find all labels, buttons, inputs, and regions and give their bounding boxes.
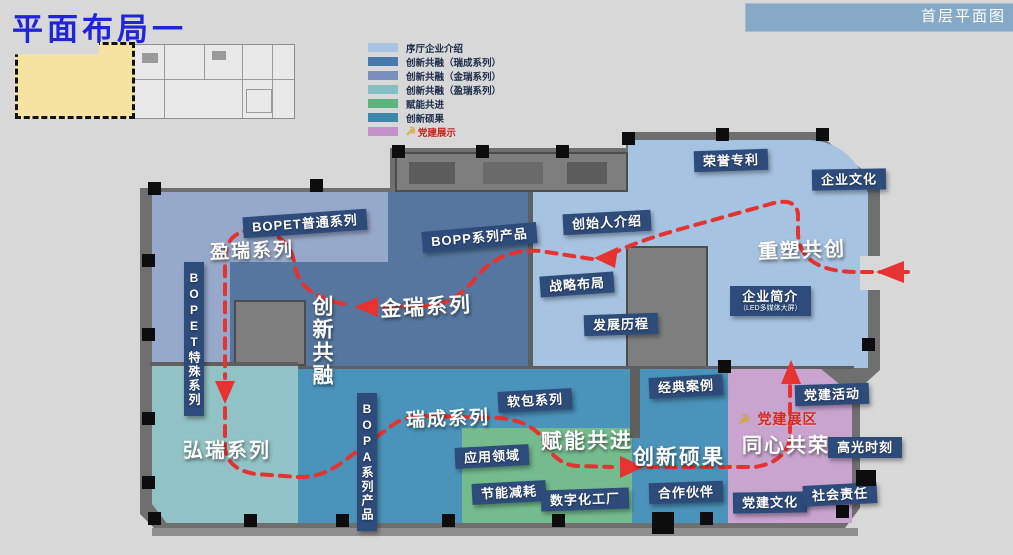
legend-swatch [368,57,398,66]
column [142,328,155,341]
legend-label: 创新硕果 [406,111,444,125]
legend-swatch [368,127,398,136]
legend-item: 序厅企业介绍 [368,41,501,54]
area-label-text: 企业简介 [742,289,798,304]
legend-swatch [368,71,398,80]
zone-title-yingrui: 盈瑞系列 [210,235,295,265]
zone-title-funeng: 赋能共进 [541,424,634,456]
area-label-bopa: BOPA系列产品 [357,393,377,531]
column [552,514,565,527]
column [718,360,731,373]
zone-title-tongxin: 同心共荣 [742,429,830,458]
area-label-hezuo: 合作伙伴 [649,481,724,505]
legend-label: 序厅企业介绍 [406,41,463,55]
area-label-dangjian-huodong: 党建活动 [795,383,870,407]
zone-title-ruicheng: 瑞成系列 [406,403,491,433]
area-label-bopet-teshu: BOPET特殊系列 [184,262,204,416]
interior-wall [150,362,298,366]
column [652,512,674,534]
area-label-yingyong: 应用领域 [455,444,530,469]
entrance-gap [860,256,886,290]
zone-title-dangjian-zhanqu: ☭ 党建展区 [738,409,818,429]
bottom-sill [152,528,858,536]
zone-title-shuoguo: 创新硕果 [633,441,725,471]
legend-item: 创新共融（盈瑞系列） [368,83,501,96]
column [716,128,729,141]
stairwell-block [626,246,708,368]
area-label-ruanbao: 软包系列 [498,388,573,413]
legend: 序厅企业介绍 创新共融（瑞成系列） 创新共融（金瑞系列） 创新共融（盈瑞系列） … [368,41,501,139]
zone-title-chuangxin-gongrong: 创新共融 [306,295,336,387]
column [622,132,635,145]
column [442,514,455,527]
party-emblem-icon: ☭ [738,412,751,427]
area-label-shuzihua: 数字化工厂 [541,487,630,511]
party-emblem-icon: ☭ [406,125,416,138]
legend-swatch [368,43,398,52]
zone-jinrui [388,192,530,370]
area-label-jingdian: 经典案例 [649,374,724,399]
column [148,512,161,525]
zone-title-chongsu: 重塑共创 [758,232,847,264]
zone-title-text: 党建展区 [758,411,818,427]
area-label-qiyewenhua: 企业文化 [812,168,886,190]
column [310,179,323,192]
legend-item: 赋能共进 [368,97,501,110]
column [336,514,349,527]
area-label-fazhan: 发展历程 [584,313,659,337]
area-label-dangjian-wenhua: 党建文化 [733,491,807,513]
legend-label: 创新共融（盈瑞系列） [406,83,501,97]
legend-item: 创新硕果 [368,111,501,124]
legend-item: 创新共融（瑞成系列） [368,55,501,68]
area-label-jieneng: 节能减耗 [472,480,547,505]
slide-canvas: 平面布局一 首层平面图 序厅企业介绍 创新共融（瑞成系列） 创新共融（金瑞系列） [0,0,1013,555]
area-label-rongyu: 荣誉专利 [694,149,769,173]
legend-label: 创新共融（金瑞系列） [406,69,501,83]
service-block [234,300,306,366]
legend-swatch [368,113,398,122]
area-label-qiyejianjie: 企业简介 （LED多媒体大屏） [730,286,811,316]
column [142,412,155,425]
zone-title-hongrui: 弘瑞系列 [183,434,271,463]
area-label-gaoguang: 高光时刻 [828,437,902,458]
legend-swatch [368,99,398,108]
legend-label: 党建展示 [418,125,456,139]
stair-corridor [395,152,628,192]
column [392,145,405,158]
legend-swatch [368,85,398,94]
column [244,514,257,527]
column [556,145,569,158]
legend-label: 赋能共进 [406,97,444,111]
thumbnail-highlight-zone [15,42,135,119]
column [148,182,161,195]
legend-item: ☭ 党建展示 [368,125,501,138]
thumbnail-detail [133,44,295,119]
column [142,476,155,489]
column [816,128,829,141]
zone-title-jinrui: 金瑞系列 [379,289,472,324]
column [700,512,713,525]
interior-wall [528,192,533,368]
column [856,470,876,486]
corner-tab: 首层平面图 [745,3,1013,32]
column [836,505,849,518]
legend-item: 创新共融（金瑞系列） [368,69,501,82]
column [476,145,489,158]
legend-label: 创新共融（瑞成系列） [406,55,501,69]
thumbnail-plan [15,42,295,119]
area-label-subtext: （LED多媒体大屏） [739,305,802,312]
column [862,338,875,351]
interior-wall [298,366,854,369]
column [142,254,155,267]
